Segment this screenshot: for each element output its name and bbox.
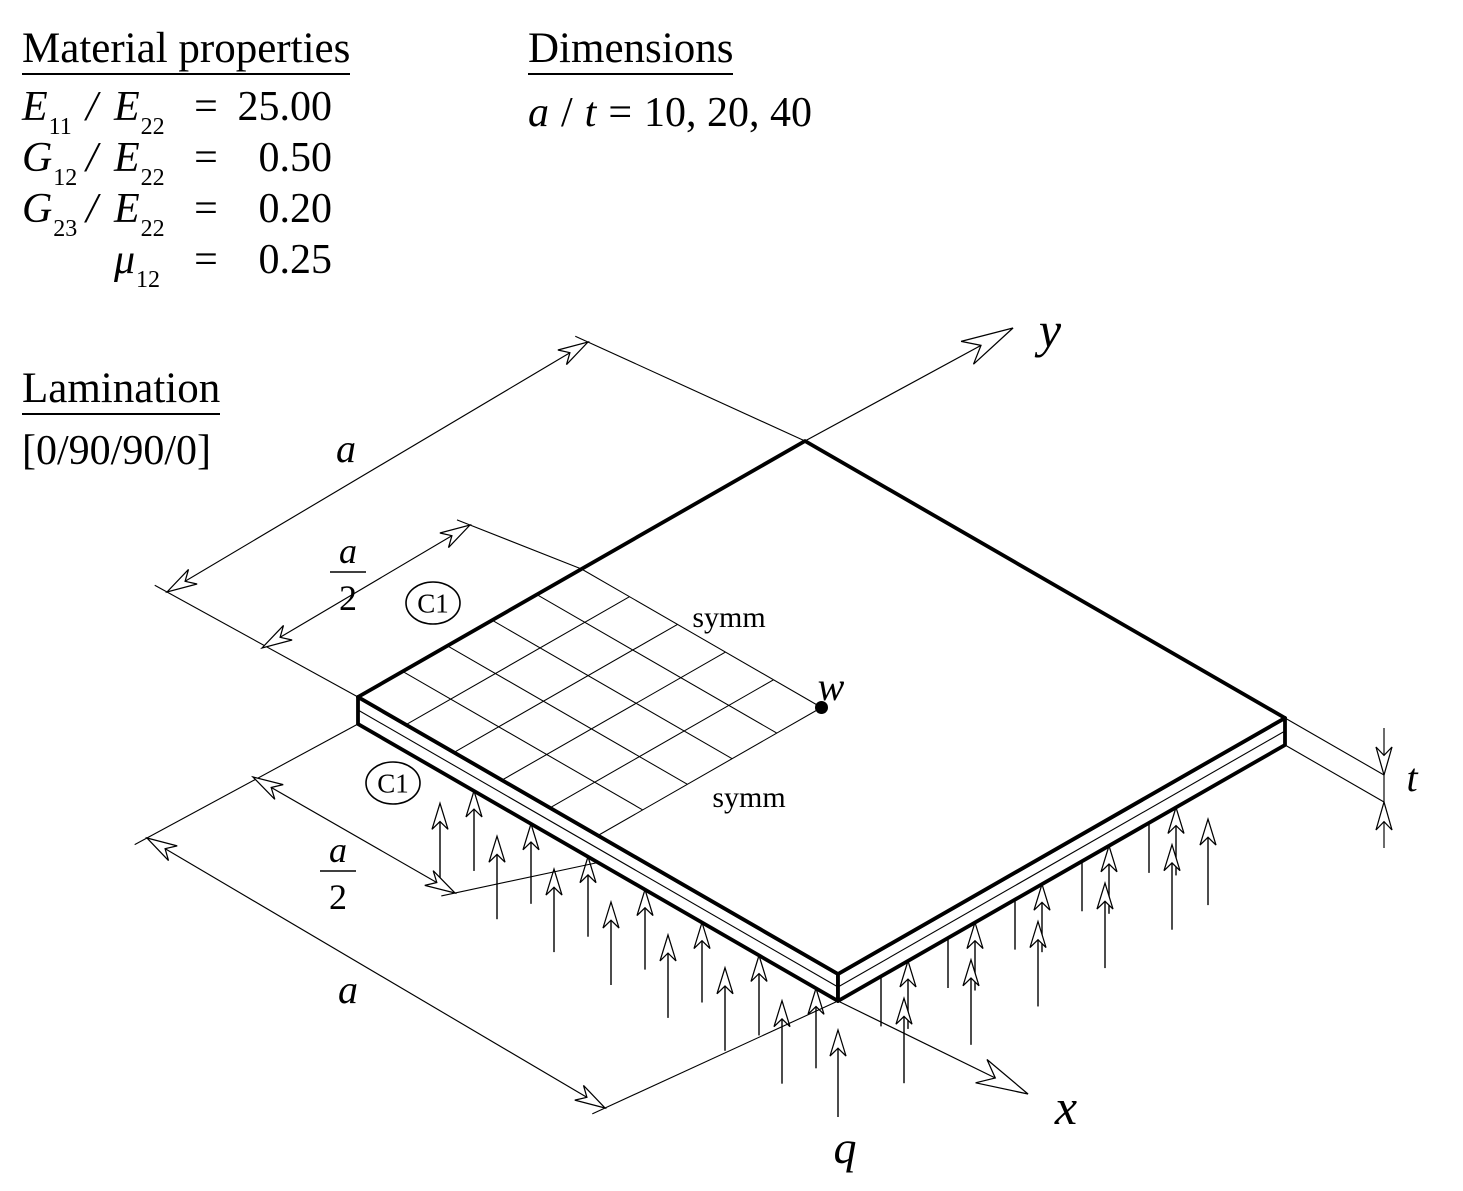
property-value: 0.20: [228, 185, 332, 233]
lamination-block: Lamination [0/90/90/0]: [22, 366, 220, 475]
x-axis-arrowhead: [976, 1060, 1028, 1095]
load-q-label: q: [834, 1122, 857, 1173]
dimensions-formula: a / t = 10, 20, 40: [528, 89, 812, 137]
property-equals: =: [184, 185, 228, 233]
property-symbol-2: E22: [114, 185, 184, 233]
dimensions-formula-rhs: t: [585, 89, 597, 137]
property-symbol-2: E22: [114, 134, 184, 182]
property-slash: /: [86, 185, 114, 233]
y-axis-label: y: [1034, 302, 1062, 358]
property-symbol-1: G12: [22, 134, 86, 182]
dim-a-half-upper-arrowhead: [440, 525, 470, 548]
dim-a-lower: [147, 838, 605, 1108]
boundary-condition-label: C1: [377, 769, 409, 799]
dimensions-title: Dimensions: [528, 26, 733, 75]
boundary-condition-label: C1: [417, 589, 449, 619]
dimensions-formula-eq: =: [608, 89, 632, 137]
property-slash: /: [86, 83, 114, 131]
dim-a-lower-arrowhead: [147, 838, 177, 861]
dim-a-lower-label: a: [338, 967, 358, 1012]
x-axis-label: x: [1054, 1079, 1077, 1135]
property-slash: /: [86, 134, 114, 182]
property-value: 0.25: [228, 236, 332, 284]
dim-a-half-lower-numerator: a: [329, 830, 347, 870]
property-equals: =: [184, 83, 228, 131]
dim-a-upper-label: a: [336, 426, 356, 471]
extension-line: [135, 724, 358, 845]
dimensions-block: Dimensions a / t = 10, 20, 40: [528, 26, 812, 137]
material-properties-block: Material properties E11/E22=25.00G12/E22…: [22, 26, 350, 287]
symm-label-top: symm: [692, 601, 765, 634]
material-property-row: E11/E22=25.00: [22, 83, 350, 134]
extension-line: [1285, 745, 1384, 802]
extension-line: [575, 336, 805, 441]
dim-a-lower-arrowhead: [575, 1085, 605, 1108]
extension-line: [592, 1001, 838, 1114]
y-axis-arrowhead: [961, 328, 1013, 364]
dim-a-upper-arrowhead: [558, 342, 588, 365]
deflection-w-label: w: [818, 664, 845, 709]
dimensions-formula-slash: /: [561, 89, 573, 137]
material-property-row: μ12=0.25: [22, 236, 350, 287]
extension-line: [155, 585, 358, 697]
dim-a-half-upper-numerator: a: [339, 531, 357, 571]
lamination-title: Lamination: [22, 366, 220, 415]
property-symbol-1: G23: [22, 185, 86, 233]
dim-a-half-lower: [253, 777, 455, 893]
property-symbol-1: E11: [22, 83, 86, 131]
property-equals: =: [184, 236, 228, 284]
dim-t-label: t: [1406, 755, 1418, 800]
dimensions-formula-values: 10, 20, 40: [644, 89, 812, 137]
property-symbol-2: E22: [114, 83, 184, 131]
extension-line: [1285, 718, 1384, 775]
dim-a-half-upper-arrowhead: [262, 625, 292, 648]
extension-line: [457, 520, 582, 569]
property-symbol-2: μ12: [114, 236, 184, 284]
dim-a-half-lower-denominator: 2: [329, 877, 347, 917]
material-properties-rows: E11/E22=25.00G12/E22=0.50G23/E22=0.20μ12…: [22, 83, 350, 287]
material-properties-title: Material properties: [22, 26, 350, 75]
dim-a-upper: [167, 342, 588, 592]
dim-a-half-upper-denominator: 2: [339, 578, 357, 618]
dim-a-half-lower-arrowhead: [253, 777, 283, 799]
property-value: 0.50: [228, 134, 332, 182]
dim-a-upper-arrowhead: [167, 569, 197, 592]
dimensions-formula-lhs: a: [528, 89, 549, 137]
material-property-row: G23/E22=0.20: [22, 185, 350, 236]
lamination-layup: [0/90/90/0]: [22, 427, 220, 475]
property-value: 25.00: [228, 83, 332, 131]
property-equals: =: [184, 134, 228, 182]
symm-label-bottom: symm: [712, 781, 785, 814]
material-property-row: G12/E22=0.50: [22, 134, 350, 185]
extension-line: [441, 863, 598, 896]
dim-a-half-upper: [262, 525, 470, 648]
